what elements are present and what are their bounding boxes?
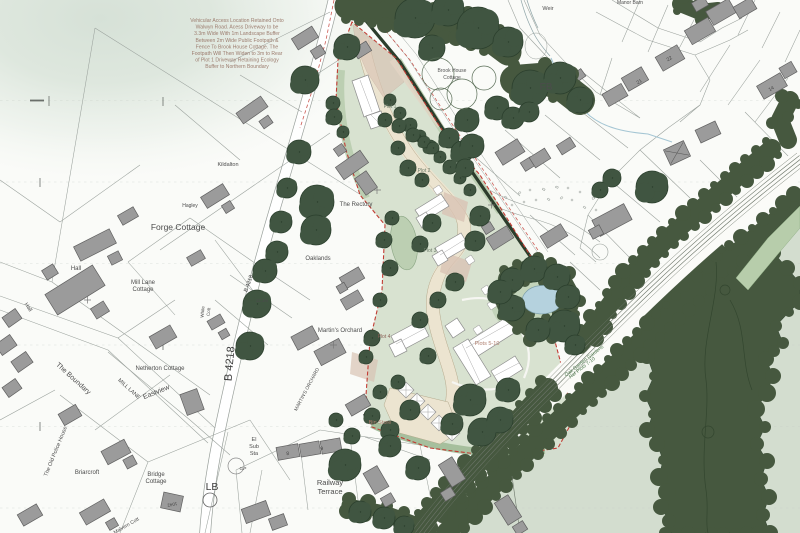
svg-text:FB: FB (540, 82, 553, 93)
svg-text:Cottage: Cottage (443, 75, 461, 81)
svg-text:Kildalton: Kildalton (217, 162, 238, 168)
svg-text:Hall: Hall (71, 266, 81, 272)
svg-text:Walwyn Road. Acess Driveway to: Walwyn Road. Acess Driveway to be (196, 25, 279, 31)
svg-text:LB: LB (206, 481, 219, 493)
svg-text:Hagley: Hagley (182, 203, 198, 209)
svg-text:Cottage: Cottage (145, 479, 167, 485)
svg-text:Fence To Brook House Cottage.: Fence To Brook House Cottage. The (196, 44, 279, 50)
svg-text:Plot 4: Plot 4 (378, 334, 391, 340)
svg-text:Forge Cottage: Forge Cottage (151, 222, 206, 232)
svg-text:The Rectory: The Rectory (340, 202, 373, 208)
svg-text:Weir: Weir (542, 6, 553, 12)
svg-text:Plot 1: Plot 1 (384, 104, 397, 110)
svg-text:Cottage: Cottage (132, 287, 154, 293)
svg-text:Oaklands: Oaklands (305, 256, 330, 262)
svg-text:Terrace: Terrace (317, 487, 342, 496)
svg-text:Sub: Sub (249, 444, 259, 450)
svg-text:3.3m Wide With 1m Landscape Bu: 3.3m Wide With 1m Landscape Buffer (194, 31, 280, 37)
svg-text:Bridge: Bridge (147, 472, 165, 478)
svg-text:Between 2m Wide Public Footpat: Between 2m Wide Public Footpath & (196, 38, 280, 44)
svg-text:El: El (252, 437, 257, 443)
svg-text:12.3m: 12.3m (256, 298, 269, 303)
svg-text:Brook House: Brook House (438, 68, 467, 74)
svg-text:Railway: Railway (317, 478, 344, 487)
svg-text:Footpath Will Then Widen to 3m: Footpath Will Then Widen to 3m to Rear (192, 51, 283, 57)
svg-text:Plot 2: Plot 2 (418, 168, 431, 174)
svg-text:of Plot 1 Driveway Retaining E: of Plot 1 Driveway Retaining Ecology (195, 58, 279, 64)
svg-text:Plot 3: Plot 3 (424, 248, 437, 254)
svg-text:White: White (200, 305, 206, 317)
svg-text:Manor Barn: Manor Barn (617, 0, 643, 6)
svg-text:Martin's Orchard: Martin's Orchard (318, 328, 362, 334)
svg-text:Buffer to Northern Boundary: Buffer to Northern Boundary (205, 64, 269, 70)
svg-text:Plots 5-10: Plots 5-10 (475, 341, 500, 347)
svg-text:Cott: Cott (206, 307, 212, 316)
svg-text:Sta: Sta (250, 451, 259, 457)
svg-text:Bin Store: Bin Store (369, 420, 392, 426)
svg-text:Vehicular Access Location Reta: Vehicular Access Location Retained Onto (190, 18, 284, 24)
svg-text:Mill Lane: Mill Lane (131, 280, 156, 286)
svg-text:Netherton Cottage: Netherton Cottage (135, 366, 185, 372)
svg-text:Briarcroft: Briarcroft (75, 470, 100, 476)
svg-text:GP: GP (240, 466, 247, 472)
